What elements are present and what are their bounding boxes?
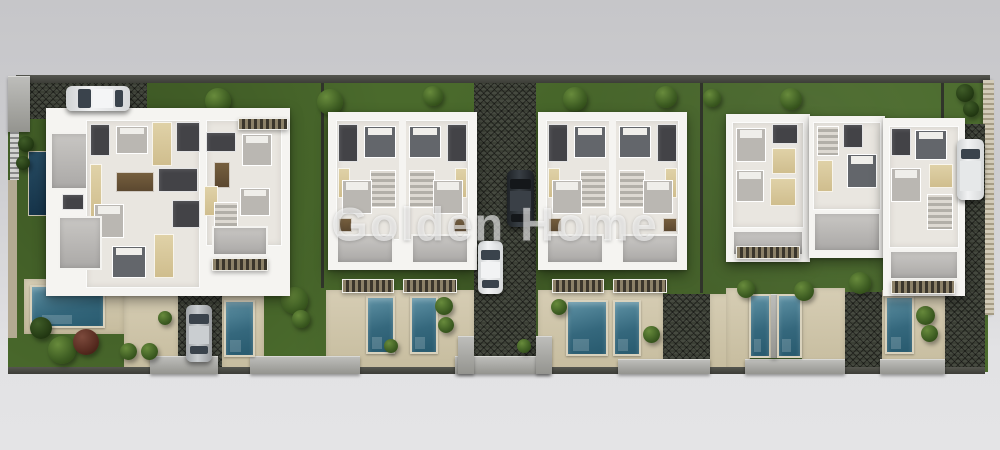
pool-b2 [613,300,641,356]
bush [643,326,660,343]
bed [847,154,877,188]
retaining-wall [618,359,710,374]
pergola [552,279,604,293]
pergola [212,258,268,271]
dining-table [116,172,154,192]
bathroom [843,124,863,148]
bed [619,126,651,158]
retaining-wall [880,359,945,374]
bed [116,126,148,154]
bush [384,339,398,353]
bed [891,168,921,202]
wardrobe [663,218,677,232]
bush [551,299,567,315]
driveway-right-bottom [845,292,882,374]
bed [736,170,764,202]
car-rear-glass [190,346,208,354]
bathroom [891,128,911,156]
car-windshield [481,250,500,260]
car-windshield [961,149,980,159]
bed [915,130,947,160]
bathroom [176,122,200,152]
bush [435,297,453,315]
kitchen [158,168,198,192]
bush [48,336,76,364]
bush [438,317,454,333]
pergola [238,118,288,130]
tree [703,89,721,107]
tree [655,86,677,108]
perimeter-wall-top [16,75,990,83]
bathroom [90,124,110,156]
roof-terrace [212,226,268,256]
entry-wall-left [8,76,30,132]
boundary-wall-left [8,180,17,338]
roof-terrace [889,250,959,280]
car-silver [186,305,212,362]
pergola [613,279,667,293]
fence-left [10,132,19,180]
drive-wall-right [536,336,552,374]
retaining-wall [745,359,845,374]
wardrobe [152,122,172,166]
plot-fence-2 [700,83,703,293]
wardrobe [770,178,796,206]
car-windshield [510,179,531,189]
lap-pool-villa [28,151,48,216]
retaining-wall [250,356,360,374]
pool-c3 [885,296,914,354]
wardrobe [214,162,230,188]
bed [409,126,441,158]
car-windshield [189,314,209,324]
watermark-text: Golden Home [331,197,659,252]
bush [292,310,310,328]
bush [849,272,871,294]
car-white-street [66,86,130,111]
bathroom [338,124,358,162]
tree [963,101,979,117]
tree [423,86,443,106]
bush [30,317,52,339]
closet [172,200,200,228]
house-connector [809,116,885,258]
drive-wall-left [458,336,474,374]
stairs [927,194,953,230]
house-5 [883,118,965,296]
van-white [957,139,984,200]
bathroom [772,124,798,144]
wardrobe [772,148,796,174]
pool-a2 [410,296,438,354]
tree [16,156,30,170]
car-roof [93,89,113,108]
pool-c2 [777,294,802,358]
bush [737,280,755,298]
bed [242,134,272,166]
car-rear-glass [115,90,123,107]
wardrobe [929,164,953,188]
tree [563,87,587,111]
bed [112,246,146,278]
bush [921,325,938,342]
pergola [891,280,955,294]
tree [18,136,34,152]
car-roof [960,161,981,191]
pergola [342,279,394,293]
bed [240,188,270,216]
bush [158,311,172,325]
wardrobe [154,234,174,278]
stairs [817,126,839,156]
roof-terrace [813,212,881,252]
villa-1 [46,108,290,296]
tree [956,84,974,102]
bed [364,126,396,158]
tree [780,88,802,110]
bush [517,339,531,353]
bush [120,343,137,360]
house-4 [726,114,810,262]
site-plan-render: Golden Home [0,0,1000,450]
pergola [403,279,457,293]
bush [73,329,99,355]
roof-terrace [58,216,102,270]
bathroom [657,124,677,162]
bed [574,126,606,158]
pool-b1 [566,300,608,356]
bathroom [447,124,467,162]
car-roof [481,262,500,278]
wardrobe [817,160,833,192]
bush [794,281,814,301]
bush [916,306,935,325]
pool-plot-2 [224,300,255,357]
bathroom [206,132,236,152]
bathroom [548,124,568,162]
car-windshield [78,89,91,108]
pergola [736,246,800,259]
pool-c1 [749,294,771,358]
car-rear-glass [482,280,499,288]
car-roof [189,326,209,344]
bush [141,343,158,360]
bed [736,128,766,162]
garage-door [62,194,84,210]
